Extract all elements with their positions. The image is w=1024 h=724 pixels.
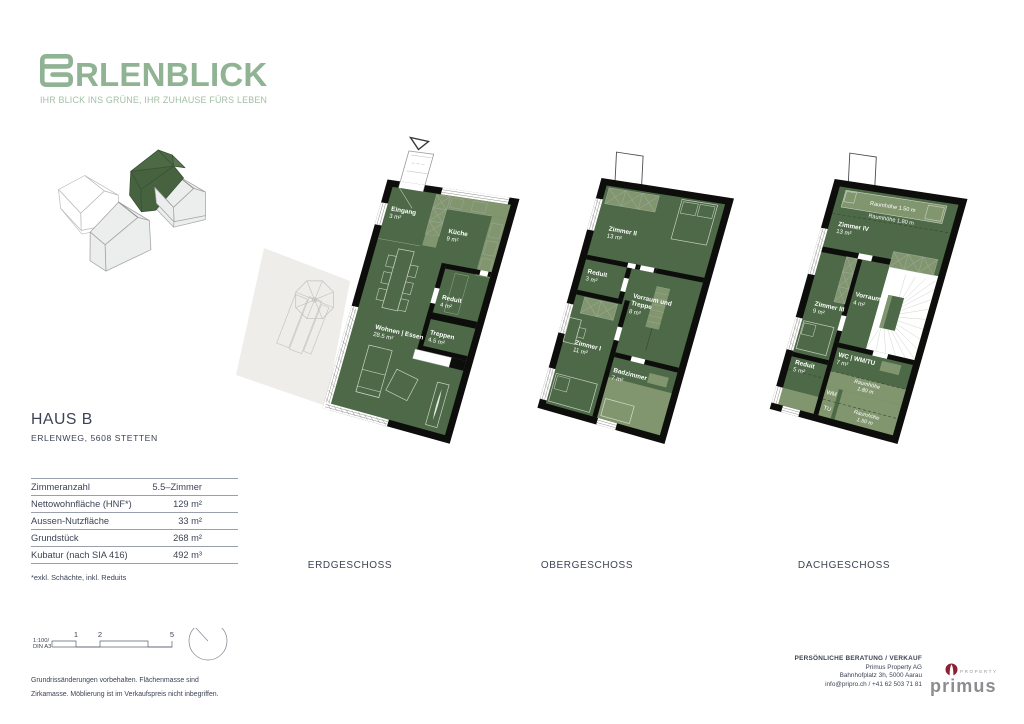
- svg-text:1: 1: [74, 630, 78, 639]
- svg-text:2: 2: [98, 630, 102, 639]
- svg-text:5: 5: [170, 630, 174, 639]
- svg-text:PROPERTY: PROPERTY: [960, 669, 998, 674]
